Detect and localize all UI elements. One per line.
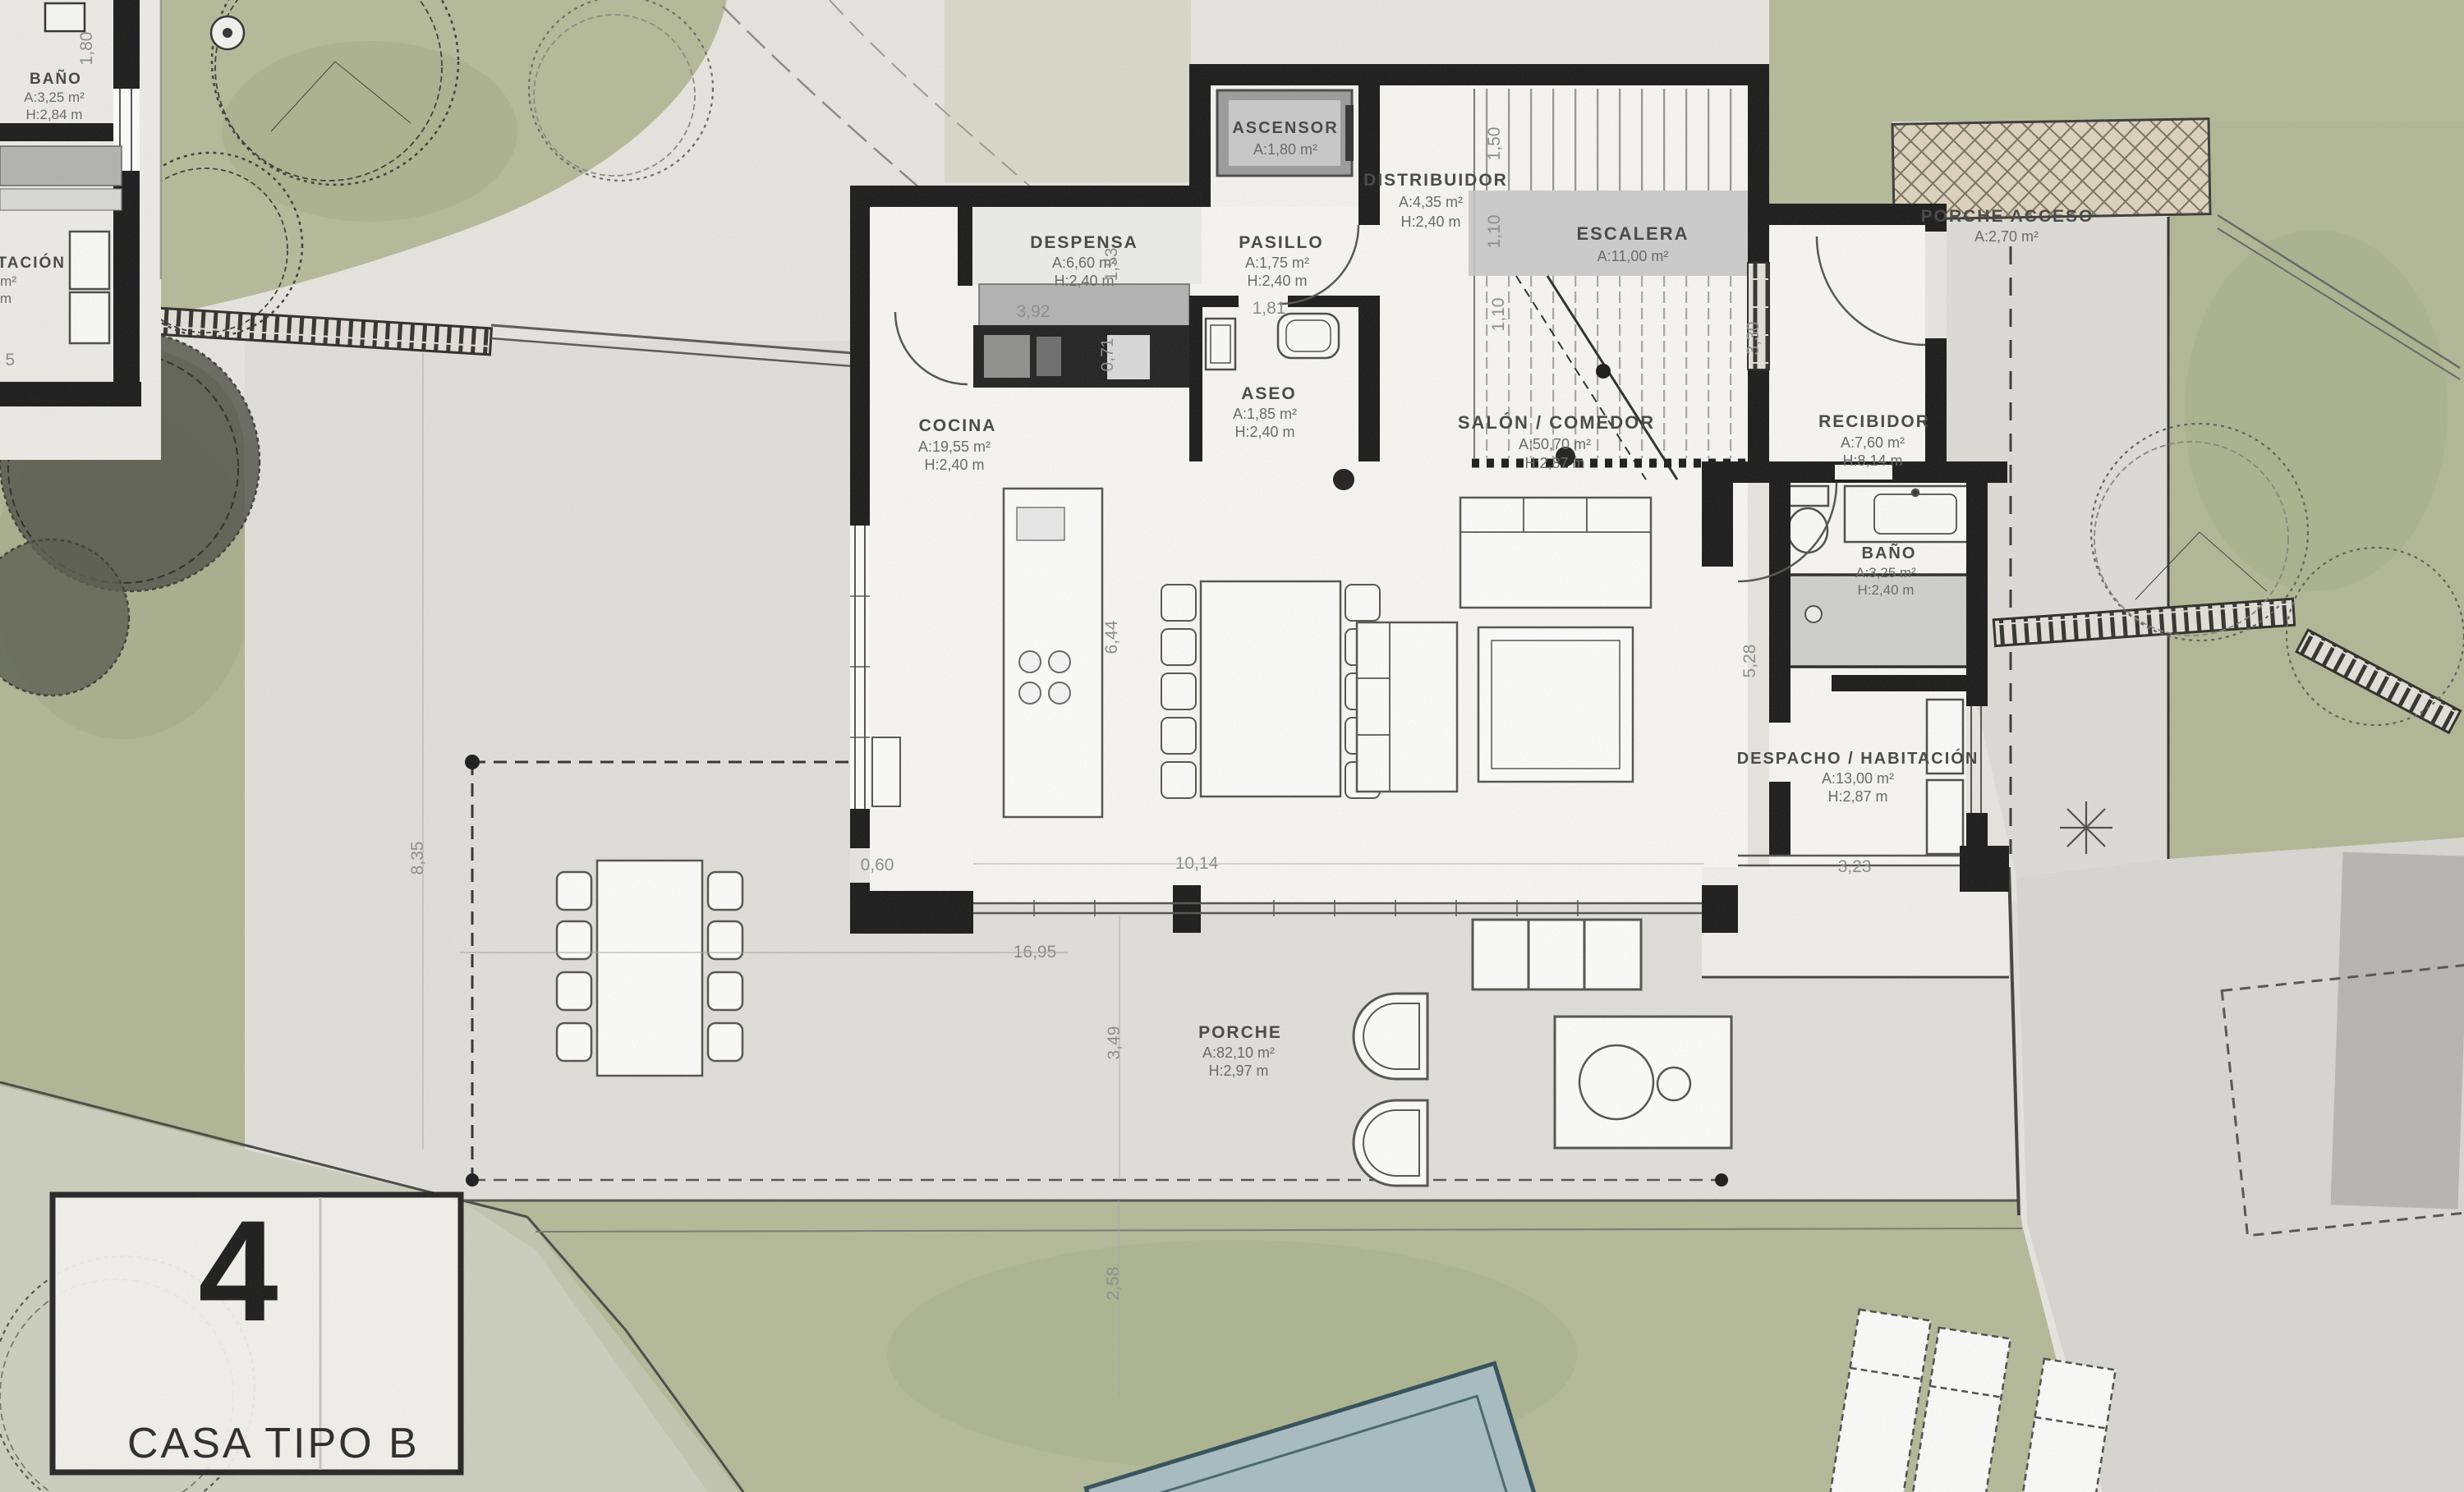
floor-plan-drawing: ASCENSOR A:1,80 m² DISTRIBUIDOR A:4,35 m…: [0, 0, 2464, 1492]
paper-grain-overlay: [0, 0, 2464, 1492]
floor-plan-page: ASCENSOR A:1,80 m² DISTRIBUIDOR A:4,35 m…: [0, 0, 2464, 1492]
